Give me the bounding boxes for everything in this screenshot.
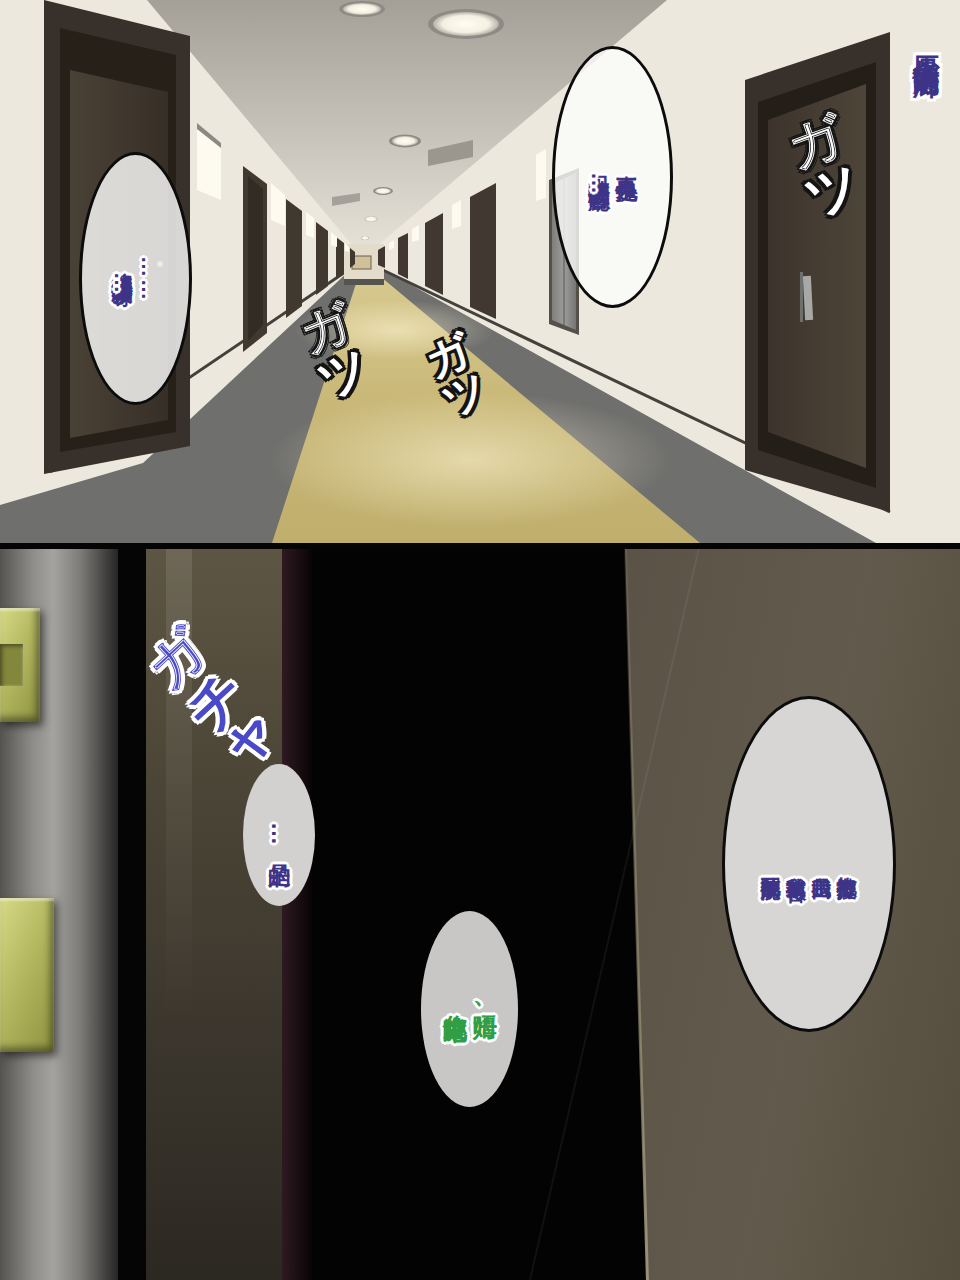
speech-text-reply: …是的 (263, 822, 295, 848)
speech-text-greeting: 抱歉打擾了 我是山田 我前來報告 配種的狀況了 (757, 861, 862, 867)
speech-bubble-invite: 唔姆、 你就進來吧 (421, 911, 518, 1107)
panel-doorway: ガチャ …是的 唔姆、 你就進來吧 抱歉打擾了 我是山田 我前來報告 配種的狀況… (0, 549, 960, 1280)
speech-bubble-greeting: 抱歉打擾了 我是山田 我前來報告 配種的狀況了 (722, 696, 896, 1032)
nameplate-plaque-top (0, 608, 40, 722)
speech-bubble-admire: 真不愧是 日本的高級官廳… (552, 46, 673, 308)
nameplate-plaque-bottom (0, 898, 54, 1052)
comic-page: 厚生省内部的走廊 真不愧是 日本的高級官廳… …… 總感覺有點緊張呀… ガツ ガ… (0, 0, 960, 1280)
speech-bubble-reply: …是的 (243, 764, 315, 906)
plaque-notch (0, 644, 23, 685)
caption-location: 厚生省内部的走廊 (908, 34, 944, 50)
speech-text-nervous: …… 總感覺有點緊張呀… (107, 256, 163, 302)
speech-text-invite: 唔姆、 你就進來吧 (438, 996, 501, 1023)
panel-hallway: 厚生省内部的走廊 真不愧是 日本的高級官廳… …… 總感覺有點緊張呀… ガツ ガ… (0, 0, 960, 543)
speech-text-admire: 真不愧是 日本的高級官廳… (583, 158, 641, 196)
speech-bubble-nervous: …… 總感覺有點緊張呀… (79, 152, 192, 405)
open-door-left-edge (282, 549, 312, 1280)
